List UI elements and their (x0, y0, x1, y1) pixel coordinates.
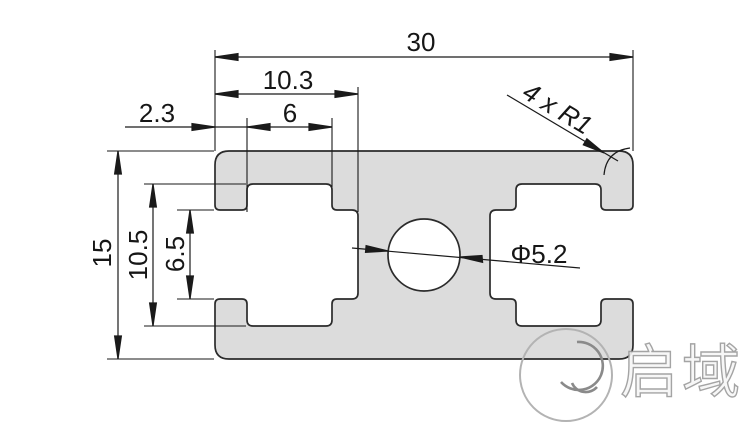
technical-drawing-canvas: 30 10.3 6 2.3 15 10.5 6.5 Φ5.2 4 x R1 启域 (0, 0, 751, 428)
arrowhead (335, 91, 358, 98)
arrowhead (247, 124, 270, 131)
arrowhead (115, 151, 122, 174)
dim-slot-depth-label: 10.3 (263, 65, 314, 95)
arrowhead (187, 276, 194, 299)
arrowhead (215, 54, 238, 61)
arrowhead (215, 91, 238, 98)
profile-section (215, 151, 633, 359)
arrowhead (115, 336, 122, 359)
arrowhead (150, 184, 157, 207)
dim-hole-diameter-label: Φ5.2 (511, 239, 568, 269)
dim-opening-height-label: 6.5 (160, 236, 190, 272)
dim-cavity-height-label: 10.5 (123, 230, 153, 281)
arrowhead (150, 303, 157, 326)
arrowhead (192, 124, 215, 131)
arrowhead (309, 124, 332, 131)
dim-lip-thickness-label: 2.3 (139, 98, 175, 128)
corner-radius-note-label: 4 x R1 (518, 76, 598, 140)
dim-slot-width-label: 6 (283, 98, 297, 128)
arrowhead (187, 210, 194, 233)
dim-total-height-label: 15 (87, 239, 117, 268)
center-bore-hole (388, 219, 460, 291)
profile-drawing: 30 10.3 6 2.3 15 10.5 6.5 Φ5.2 4 x R1 启域 (0, 0, 751, 428)
watermark-logo-text: 启域 (620, 340, 744, 405)
arrowhead (610, 54, 633, 61)
dim-total-width-label: 30 (407, 27, 436, 57)
